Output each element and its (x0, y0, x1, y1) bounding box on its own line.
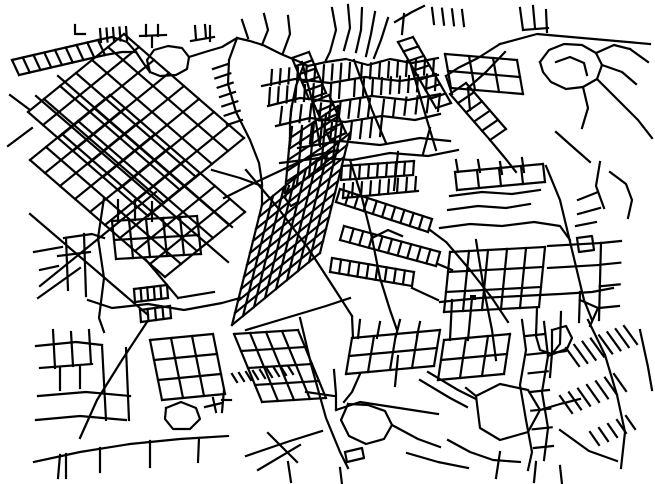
street-segment (376, 266, 378, 280)
street-segment (135, 298, 168, 302)
street-segment (339, 82, 340, 98)
street-segment (332, 65, 333, 80)
street-segment (256, 157, 344, 229)
street-segment (75, 25, 85, 34)
street-segment (36, 416, 126, 420)
street-segment (579, 292, 580, 322)
street-segment (53, 330, 55, 368)
street-segment (102, 345, 106, 420)
street-segment (88, 298, 240, 310)
street-segment (341, 404, 392, 444)
street-segment (344, 226, 440, 252)
street-segment (556, 132, 590, 162)
street-segment (340, 64, 341, 79)
street-segment (350, 165, 351, 179)
street-segment (640, 330, 652, 390)
street-segment (406, 61, 407, 76)
street-segment (290, 106, 292, 123)
street-segment (340, 226, 344, 240)
street-segment (602, 65, 636, 84)
street-segment (599, 428, 608, 441)
street-segment (410, 213, 414, 226)
street-segment (398, 242, 402, 256)
street-segment (227, 120, 242, 125)
street-segment (446, 287, 541, 292)
street-segment (352, 316, 353, 338)
street-segment (456, 160, 458, 172)
street-segment (399, 77, 400, 93)
street-segment (372, 79, 373, 95)
street-segment (423, 128, 430, 154)
street-segment (574, 345, 587, 363)
street-segment (44, 53, 51, 68)
street-segment (356, 8, 362, 52)
street-segment (358, 100, 360, 117)
street-segment (448, 267, 543, 272)
street-segment (12, 60, 19, 75)
street-segment (220, 92, 235, 97)
street-segment (386, 163, 387, 177)
street-segment (391, 207, 395, 220)
street-segment (350, 121, 352, 139)
street-segment (596, 162, 604, 208)
street-segment (12, 40, 98, 60)
street-segment (607, 332, 620, 350)
street-segment (610, 172, 632, 218)
street-segment (451, 88, 523, 94)
street-segment (381, 78, 382, 94)
street-segment (350, 229, 354, 243)
street-segment (288, 462, 291, 482)
street-segment (601, 241, 621, 243)
street-segment (450, 247, 545, 252)
street-segment (599, 335, 612, 353)
street-segment (40, 364, 92, 368)
street-segment (526, 334, 545, 336)
street-segment (599, 306, 619, 308)
street-segment (388, 62, 389, 77)
street-segment (98, 198, 104, 332)
street-segment (238, 229, 326, 301)
street-segment (154, 354, 217, 360)
street-segment (463, 251, 469, 311)
street-segment (113, 28, 114, 41)
street-segment (278, 87, 279, 103)
city-block-dot (470, 295, 476, 300)
street-segment (66, 48, 73, 63)
street-segment (370, 119, 372, 137)
street-segment (162, 394, 225, 400)
street-segment (352, 183, 353, 197)
street-segment (520, 248, 526, 308)
street-segment (40, 266, 58, 270)
street-segment (34, 55, 41, 70)
street-segment (520, 8, 523, 30)
street-segment (400, 210, 404, 223)
street-segment (576, 222, 596, 226)
street-segment (608, 424, 617, 437)
street-segment (134, 285, 167, 289)
street-segment (218, 83, 233, 88)
street-segment (533, 6, 535, 28)
street-segment (388, 180, 389, 194)
street-segment (385, 267, 387, 281)
street-segment (536, 308, 561, 354)
street-segment (408, 76, 409, 92)
street-segment (314, 66, 315, 81)
street-segment (395, 356, 398, 386)
street-segment (430, 230, 446, 242)
street-segment (357, 263, 359, 277)
street-segment (360, 120, 362, 138)
street-segment (246, 431, 322, 456)
street-segment (548, 265, 599, 268)
street-segment (370, 63, 371, 78)
street-segment (213, 334, 225, 394)
street-segment (213, 64, 228, 69)
street-segment (540, 44, 602, 89)
street-segment (370, 181, 371, 195)
street-segment (288, 366, 293, 374)
street-segment (287, 87, 288, 103)
street-segment (440, 222, 570, 240)
street-segment (428, 372, 476, 399)
street-segment (379, 181, 380, 195)
street-segment (306, 67, 307, 82)
street-segment (178, 292, 214, 298)
street-segment (600, 284, 620, 286)
street-segment (163, 307, 164, 319)
street-segment (320, 124, 322, 142)
street-segment (260, 370, 265, 378)
street-segment (58, 455, 60, 478)
street-segment (195, 26, 196, 39)
street-segment (269, 88, 270, 104)
street-segment (323, 65, 324, 80)
street-segment (626, 416, 635, 429)
street-segment (490, 129, 506, 140)
street-segment (158, 374, 221, 380)
street-segment (280, 150, 458, 163)
street-map-canvas (0, 0, 655, 484)
street-segment (339, 260, 341, 274)
street-segment (241, 217, 329, 289)
street-segment (482, 120, 498, 131)
street-segment (444, 307, 539, 312)
street-segment (341, 166, 342, 180)
street-segment (395, 162, 396, 176)
street-segment (36, 342, 102, 346)
street-segment (450, 300, 452, 340)
street-segment (556, 57, 587, 75)
street-segment (578, 208, 600, 214)
street-segment (8, 128, 32, 146)
street-segment (407, 244, 411, 258)
street-segment (87, 43, 94, 58)
street-segment (313, 84, 314, 100)
street-segment (359, 231, 363, 245)
street-segment (379, 63, 380, 78)
street-segment (205, 25, 206, 38)
street-segment (448, 440, 520, 462)
street-segment (274, 368, 279, 376)
street-segment (397, 179, 398, 193)
street-segment (448, 204, 530, 210)
street-segment (114, 235, 199, 240)
street-segment (140, 310, 141, 322)
street-segment (134, 289, 135, 302)
street-segment (582, 87, 588, 128)
street-segment (334, 370, 336, 410)
street-segment (280, 69, 281, 84)
street-segment (120, 28, 121, 41)
street-segment (442, 9, 444, 25)
street-segment (247, 193, 335, 265)
street-segment (394, 269, 396, 283)
street-segment (406, 178, 407, 192)
street-segment (395, 6, 424, 22)
street-segment (444, 252, 450, 312)
street-segment (392, 425, 440, 447)
street-segment (390, 77, 391, 93)
street-segment (452, 9, 454, 25)
street-segment (550, 353, 552, 377)
street-segment (441, 354, 507, 360)
street-segment (500, 34, 650, 44)
street-segment (23, 58, 30, 73)
street-segment (150, 340, 162, 400)
street-segment (167, 285, 168, 298)
street-segment (448, 71, 520, 77)
street-segment (330, 258, 332, 272)
street-segment (295, 86, 296, 102)
street-segment (262, 14, 268, 45)
street-segment (77, 45, 84, 60)
street-segment (253, 371, 258, 379)
street-segment (624, 326, 637, 344)
street-segment (71, 332, 73, 366)
street-segment (55, 50, 62, 65)
street-segment (348, 261, 350, 275)
street-segment (344, 5, 350, 50)
street-segment (438, 264, 452, 270)
street-segment (246, 298, 350, 330)
street-segment (377, 164, 378, 178)
street-segment (468, 88, 470, 110)
street-segment (330, 272, 412, 286)
street-segment (560, 430, 617, 461)
street-segment (373, 201, 377, 214)
street-segment (417, 247, 421, 261)
street-segment (344, 374, 360, 402)
street-segment (566, 348, 579, 366)
street-segment (404, 162, 405, 176)
street-segment (534, 446, 553, 448)
street-segment (150, 334, 213, 340)
street-segment (34, 247, 62, 252)
street-segment (326, 8, 336, 60)
street-segment (345, 448, 364, 462)
street-segment (368, 164, 369, 178)
street-segment (523, 28, 548, 30)
street-segment (419, 216, 423, 229)
street-segment (192, 336, 204, 396)
street-segment (339, 102, 341, 119)
street-segment (280, 107, 282, 124)
street-segment (147, 287, 148, 300)
street-segment (358, 320, 360, 338)
street-segment (232, 374, 237, 382)
street-segment (398, 37, 413, 42)
street-segment (388, 239, 392, 253)
street-segment (587, 385, 599, 402)
street-segment (340, 468, 342, 484)
street-segment (458, 92, 474, 103)
street-segment (427, 95, 429, 112)
street-segment (378, 236, 382, 250)
street-segment (212, 170, 262, 186)
street-segment (239, 373, 244, 381)
street-segment (432, 8, 434, 24)
street-segment (407, 453, 468, 468)
street-segment (198, 438, 199, 462)
street-segment (412, 288, 438, 300)
street-segment (84, 234, 86, 296)
street-segment (361, 182, 362, 196)
street-segment (148, 309, 149, 321)
street-segment (366, 12, 375, 56)
street-segment (531, 409, 550, 411)
street-segment (578, 389, 590, 406)
street-segment (271, 70, 272, 85)
street-segment (444, 334, 510, 340)
street-segment (597, 79, 652, 138)
street-segment (596, 45, 630, 53)
street-segment (126, 27, 127, 40)
street-segment (165, 402, 200, 429)
street-map (0, 0, 655, 484)
street-segment (583, 342, 596, 360)
street-segment (374, 18, 388, 58)
street-segment (348, 101, 350, 118)
street-segment (413, 161, 414, 175)
street-segment (19, 55, 105, 75)
street-segment (501, 249, 507, 309)
street-segment (590, 432, 599, 445)
street-segment (170, 306, 171, 318)
street-segment (141, 288, 142, 301)
street-segment (242, 20, 248, 38)
street-segment (382, 100, 384, 117)
street-segment (468, 298, 472, 340)
street-segment (155, 308, 156, 320)
street-segment (304, 85, 305, 101)
street-segment (596, 381, 608, 398)
street-segment (126, 348, 129, 420)
street-segment (361, 64, 362, 79)
street-segment (349, 63, 350, 78)
street-segment (543, 164, 545, 182)
street-segment (527, 353, 546, 355)
street-segment (332, 258, 414, 272)
street-segment (38, 392, 130, 396)
street-segment (235, 241, 323, 313)
street-segment (539, 247, 545, 307)
street-segment (455, 172, 457, 190)
street-segment (415, 177, 416, 191)
street-segment (322, 84, 323, 100)
street-segment (474, 111, 490, 122)
street-segment (477, 170, 479, 188)
street-segment (397, 62, 398, 77)
street-segment (426, 249, 430, 263)
street-segment (534, 462, 536, 482)
street-segment (107, 29, 108, 42)
street-segment (560, 466, 562, 484)
street-segment (100, 29, 101, 42)
street-segment (420, 380, 467, 407)
street-segment (330, 83, 331, 99)
street-segment (530, 390, 549, 392)
street-segment (213, 398, 216, 412)
street-segment (292, 52, 309, 58)
street-segment (496, 452, 500, 478)
street-segment (403, 46, 418, 51)
street-segment (600, 263, 620, 265)
street-segment (366, 264, 368, 278)
street-segment (288, 68, 289, 83)
street-segment (393, 99, 395, 116)
street-segment (160, 286, 161, 299)
street-segment (237, 38, 308, 66)
street-segment (403, 270, 405, 284)
street-segment (283, 16, 290, 53)
street-segment (412, 272, 414, 286)
street-segment (89, 330, 91, 364)
street-segment (10, 95, 30, 110)
street-segment (359, 165, 360, 179)
street-segment (297, 68, 298, 83)
street-segment (450, 190, 540, 196)
street-segment (354, 80, 355, 96)
street-segment (630, 49, 648, 62)
street-segment (171, 338, 183, 398)
street-segment (232, 253, 320, 325)
street-segment (578, 192, 598, 200)
street-segment (165, 212, 245, 277)
street-segment (616, 329, 629, 347)
street-segment (382, 204, 386, 217)
street-segment (438, 374, 504, 380)
street-segment (154, 287, 155, 300)
street-segment (462, 10, 464, 26)
street-segment (363, 79, 364, 95)
